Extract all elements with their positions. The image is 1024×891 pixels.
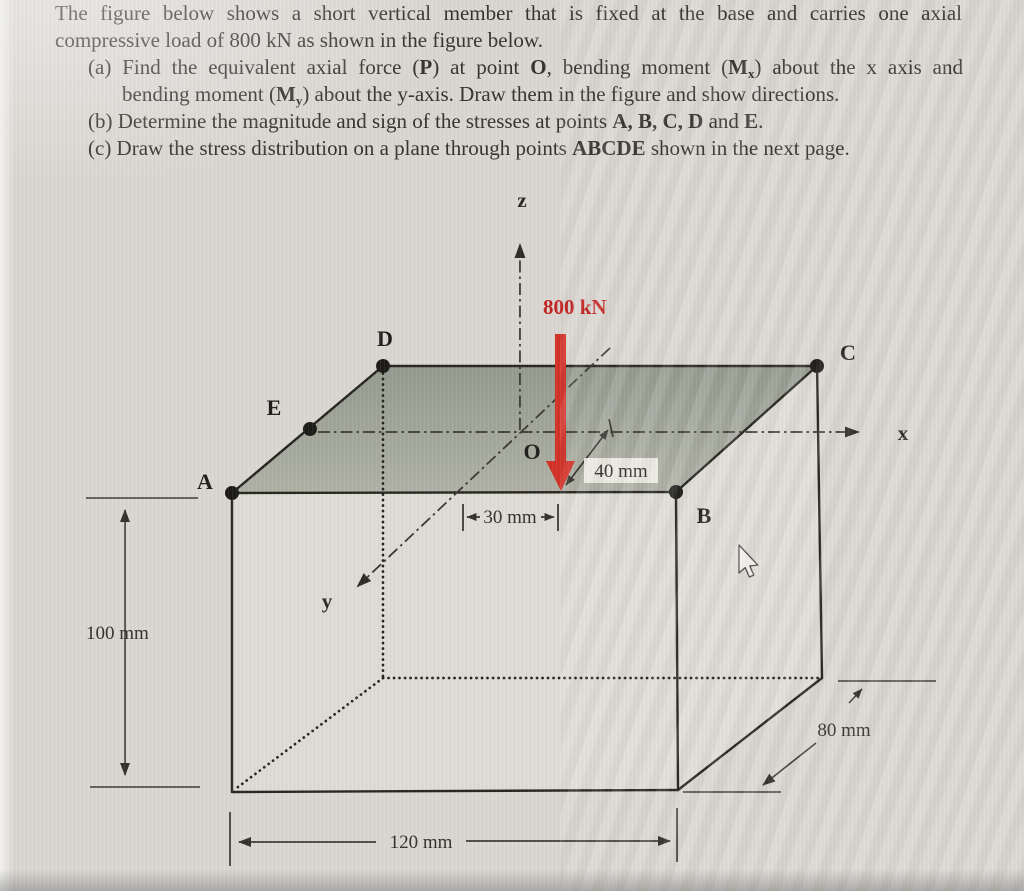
load-arrow-shaft xyxy=(555,334,566,464)
point-label-C: C xyxy=(840,340,856,365)
point-label-O: O xyxy=(523,439,540,464)
vertex-dot-B xyxy=(669,485,683,499)
vertex-dot-E xyxy=(303,422,317,436)
dim-80mm-label: 80 mm xyxy=(817,720,871,741)
x-axis-label: x xyxy=(898,421,909,445)
dim-80mm-arrow-up xyxy=(849,689,862,703)
point-label-A: A xyxy=(197,469,213,494)
figure-diagram: 40 mm 30 mm 100 mm 120 mm 80 mm 800 kN z… xyxy=(0,0,1024,891)
y-axis-label: y xyxy=(322,589,333,613)
dim-40mm-label: 40 mm xyxy=(594,461,648,482)
dim-30mm-label: 30 mm xyxy=(483,507,537,528)
point-label-E: E xyxy=(267,395,282,420)
page: { "problem": { "lines": [ {"segs": [{"t"… xyxy=(0,0,1024,891)
box-front-face xyxy=(232,492,678,792)
point-label-B: B xyxy=(697,503,712,528)
dim-120mm-label: 120 mm xyxy=(390,832,453,853)
point-label-D: D xyxy=(377,326,393,351)
z-axis-label: z xyxy=(517,188,526,212)
load-label: 800 kN xyxy=(543,295,607,319)
vertex-dot-A xyxy=(225,486,239,500)
vertex-dot-C xyxy=(810,359,824,373)
dim-80mm-arrow-down xyxy=(763,743,816,785)
dim-100mm-label: 100 mm xyxy=(86,623,149,644)
vertex-dot-D xyxy=(376,359,390,373)
